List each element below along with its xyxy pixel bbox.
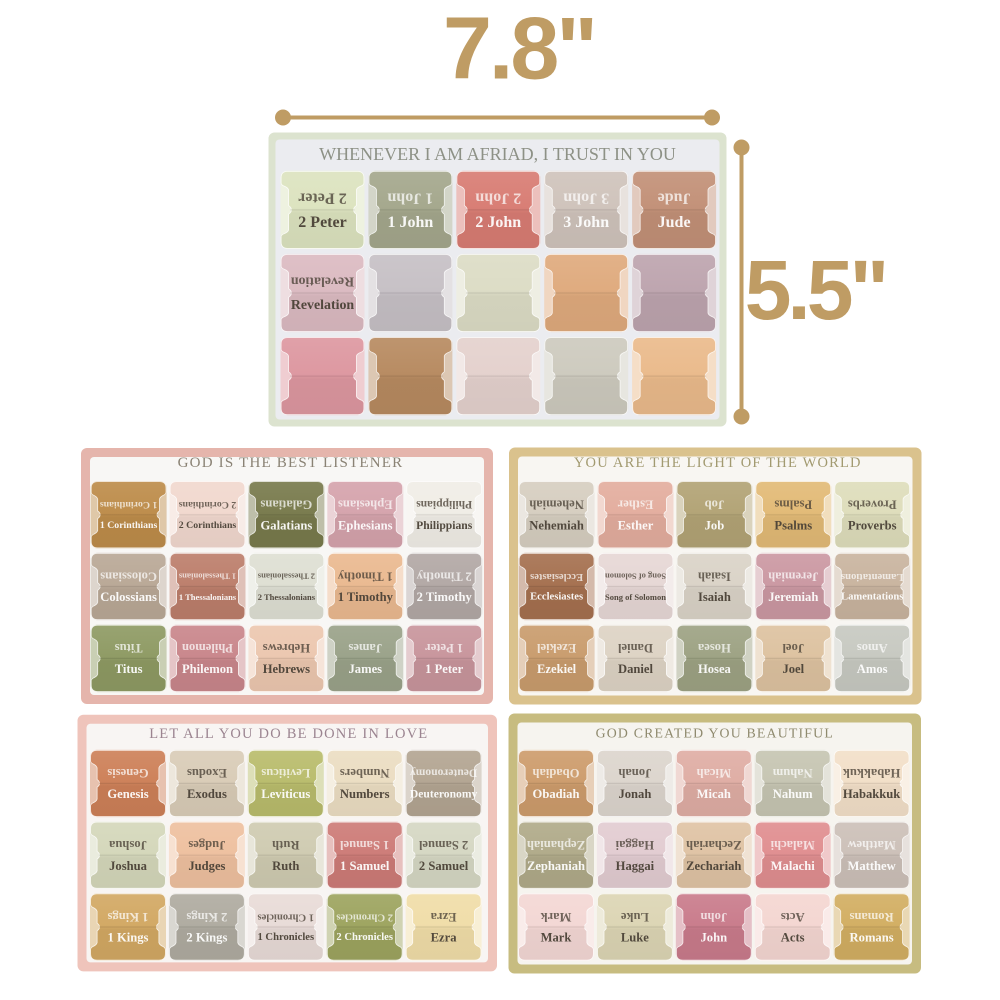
svg-text:2 Timothy: 2 Timothy (416, 569, 472, 583)
svg-text:Ezekiel: Ezekiel (537, 641, 577, 655)
svg-text:Jude: Jude (658, 190, 691, 207)
svg-text:Malachi: Malachi (770, 838, 815, 852)
svg-text:Philippians: Philippians (416, 498, 473, 511)
svg-text:Numbers: Numbers (340, 787, 390, 801)
svg-text:Joshua: Joshua (108, 838, 147, 852)
svg-text:Revelation: Revelation (291, 274, 355, 289)
svg-text:Ruth: Ruth (272, 838, 299, 852)
svg-text:Malachi: Malachi (771, 859, 816, 873)
svg-text:Genesis: Genesis (107, 787, 148, 801)
svg-text:Nehemiah: Nehemiah (529, 498, 584, 512)
svg-text:Matthew: Matthew (847, 859, 896, 873)
svg-text:Ezekiel: Ezekiel (537, 662, 577, 676)
svg-text:Jonah: Jonah (618, 766, 651, 780)
svg-text:1 Timothy: 1 Timothy (337, 569, 393, 583)
svg-text:Genesis: Genesis (107, 766, 148, 780)
svg-text:Jeremiah: Jeremiah (768, 569, 818, 583)
svg-text:WHENEVER I AM AFRIAD, I TRUST: WHENEVER I AM AFRIAD, I TRUST IN YOU (319, 144, 676, 164)
svg-text:Proverbs: Proverbs (848, 518, 897, 532)
svg-text:Job: Job (705, 498, 725, 512)
svg-text:Philemon: Philemon (182, 662, 233, 676)
svg-text:Acts: Acts (781, 931, 805, 945)
svg-text:Judges: Judges (188, 838, 225, 852)
svg-text:Psalms: Psalms (774, 518, 812, 532)
svg-text:Ruth: Ruth (272, 859, 299, 873)
svg-text:Galatians: Galatians (261, 518, 313, 532)
svg-text:Zechariah: Zechariah (686, 838, 741, 852)
svg-text:John: John (700, 931, 727, 945)
svg-text:LET ALL YOU DO BE DONE IN LOVE: LET ALL YOU DO BE DONE IN LOVE (149, 726, 428, 742)
svg-text:Hosea: Hosea (698, 662, 732, 676)
svg-text:Leviticus: Leviticus (261, 787, 310, 801)
svg-text:Zephaniah: Zephaniah (527, 838, 585, 852)
svg-text:2 Kings: 2 Kings (186, 931, 227, 945)
svg-text:2 Thessalonians: 2 Thessalonians (258, 592, 316, 602)
svg-text:Revelation: Revelation (291, 298, 355, 313)
svg-text:3 John: 3 John (563, 190, 609, 207)
svg-text:1 Samuel: 1 Samuel (340, 838, 390, 852)
svg-text:Philippians: Philippians (416, 519, 473, 532)
svg-text:Psalms: Psalms (774, 498, 812, 512)
svg-text:Lamentations: Lamentations (841, 571, 903, 582)
svg-text:1 Kings: 1 Kings (107, 910, 148, 924)
svg-text:2 Samuel: 2 Samuel (418, 838, 468, 852)
svg-text:Nehemiah: Nehemiah (529, 518, 584, 532)
svg-text:2 Corinthians: 2 Corinthians (179, 499, 237, 510)
svg-text:Isaiah: Isaiah (698, 590, 731, 604)
svg-text:Romans: Romans (849, 910, 893, 924)
svg-text:1 Peter: 1 Peter (425, 641, 464, 655)
svg-text:Ephesians: Ephesians (338, 518, 393, 532)
svg-text:Haggai: Haggai (615, 838, 654, 852)
svg-text:2 Timothy: 2 Timothy (417, 590, 473, 604)
svg-text:Esther: Esther (618, 518, 654, 532)
svg-text:Ezra: Ezra (430, 910, 457, 924)
svg-text:Amos: Amos (857, 662, 888, 676)
svg-text:GOD IS THE BEST LISTENER: GOD IS THE BEST LISTENER (178, 455, 404, 471)
svg-text:Obadiah: Obadiah (533, 766, 580, 780)
svg-text:Micah: Micah (697, 766, 731, 780)
svg-text:Habakkuk: Habakkuk (843, 787, 900, 801)
svg-text:Matthew: Matthew (847, 838, 896, 852)
svg-text:2 John: 2 John (475, 190, 521, 207)
svg-text:Joshua: Joshua (109, 859, 148, 873)
svg-text:Mark: Mark (541, 910, 572, 924)
svg-text:1 Samuel: 1 Samuel (340, 859, 390, 873)
svg-text:Colossians: Colossians (100, 569, 157, 583)
svg-text:Exodus: Exodus (187, 787, 227, 801)
svg-text:Exodus: Exodus (187, 766, 227, 780)
svg-text:Romans: Romans (850, 931, 894, 945)
svg-text:Zephaniah: Zephaniah (527, 859, 585, 873)
svg-text:5.5": 5.5" (745, 243, 886, 337)
svg-text:2 Peter: 2 Peter (298, 214, 346, 231)
svg-text:1 Thessalonians: 1 Thessalonians (179, 592, 237, 602)
svg-text:2 John: 2 John (475, 214, 521, 231)
svg-text:Isaiah: Isaiah (698, 569, 731, 583)
svg-text:Luke: Luke (620, 910, 648, 924)
svg-text:Ezra: Ezra (431, 931, 458, 945)
svg-text:Daniel: Daniel (618, 641, 653, 655)
svg-text:2 Chronicles: 2 Chronicles (336, 911, 393, 922)
svg-text:7.8": 7.8" (443, 0, 595, 98)
svg-text:Mark: Mark (541, 931, 572, 945)
svg-text:Zechariah: Zechariah (686, 859, 741, 873)
svg-text:Titus: Titus (115, 662, 143, 676)
svg-text:1 Chronicles: 1 Chronicles (257, 911, 314, 922)
svg-text:1 John: 1 John (387, 190, 433, 207)
svg-text:1 Kings: 1 Kings (108, 931, 149, 945)
svg-text:Joel: Joel (782, 662, 804, 676)
svg-text:2 Thessalonians: 2 Thessalonians (257, 571, 315, 581)
svg-text:Nahum: Nahum (772, 766, 812, 780)
svg-text:2 Samuel: 2 Samuel (419, 859, 469, 873)
svg-text:1 Chronicles: 1 Chronicles (257, 932, 314, 943)
svg-text:Amos: Amos (857, 641, 888, 655)
svg-text:Jeremiah: Jeremiah (768, 590, 818, 604)
svg-text:Song of Solomon: Song of Solomon (605, 592, 666, 602)
svg-text:Galatians: Galatians (260, 498, 312, 512)
svg-text:1 Corinthians: 1 Corinthians (100, 499, 158, 510)
svg-text:Job: Job (705, 518, 725, 532)
svg-text:Colossians: Colossians (100, 590, 157, 604)
svg-text:GOD CREATED YOU BEAUTIFUL: GOD CREATED YOU BEAUTIFUL (596, 726, 834, 741)
svg-text:Acts: Acts (781, 910, 805, 924)
svg-text:2 Chronicles: 2 Chronicles (336, 932, 393, 943)
svg-text:Daniel: Daniel (618, 662, 653, 676)
svg-text:2 Kings: 2 Kings (186, 910, 227, 924)
svg-text:1 Corinthians: 1 Corinthians (100, 520, 158, 531)
svg-text:Ecclesiastes: Ecclesiastes (530, 571, 583, 582)
svg-text:James: James (348, 641, 382, 655)
svg-text:Ephesians: Ephesians (338, 498, 393, 512)
svg-text:Deuteronomy: Deuteronomy (410, 767, 478, 780)
svg-text:Judges: Judges (188, 859, 225, 873)
svg-text:Jonah: Jonah (618, 787, 651, 801)
svg-text:3 John: 3 John (563, 214, 609, 231)
svg-text:Nahum: Nahum (773, 787, 813, 801)
svg-text:1 Thessalonians: 1 Thessalonians (178, 571, 236, 581)
svg-text:Luke: Luke (621, 931, 649, 945)
svg-text:1 Timothy: 1 Timothy (338, 590, 394, 604)
svg-text:Haggai: Haggai (616, 859, 655, 873)
svg-text:Micah: Micah (697, 787, 731, 801)
svg-text:Habakkuk: Habakkuk (843, 766, 900, 780)
svg-text:1 Peter: 1 Peter (425, 662, 464, 676)
svg-text:Song of Solomon: Song of Solomon (605, 571, 666, 581)
svg-text:Numbers: Numbers (340, 766, 390, 780)
svg-text:Proverbs: Proverbs (848, 498, 897, 512)
svg-text:Obadiah: Obadiah (533, 787, 580, 801)
svg-text:1 John: 1 John (388, 214, 434, 231)
svg-text:Esther: Esther (617, 498, 653, 512)
svg-text:John: John (700, 910, 727, 924)
svg-text:Hebrews: Hebrews (263, 662, 310, 676)
svg-text:Deuteronomy: Deuteronomy (410, 788, 478, 801)
svg-text:Hebrews: Hebrews (263, 641, 310, 655)
svg-text:Ecclesiastes: Ecclesiastes (530, 592, 583, 603)
svg-text:2 Corinthians: 2 Corinthians (179, 520, 237, 531)
svg-text:Leviticus: Leviticus (261, 766, 310, 780)
svg-text:Philemon: Philemon (182, 641, 233, 655)
svg-text:Jude: Jude (658, 214, 691, 231)
svg-text:2 Peter: 2 Peter (298, 190, 346, 207)
svg-text:Hosea: Hosea (697, 641, 731, 655)
svg-text:James: James (349, 662, 383, 676)
svg-text:Joel: Joel (782, 641, 804, 655)
svg-text:Lamentations: Lamentations (841, 592, 903, 603)
svg-text:Titus: Titus (115, 641, 143, 655)
svg-text:YOU ARE THE LIGHT OF THE WORLD: YOU ARE THE LIGHT OF THE WORLD (574, 455, 862, 471)
